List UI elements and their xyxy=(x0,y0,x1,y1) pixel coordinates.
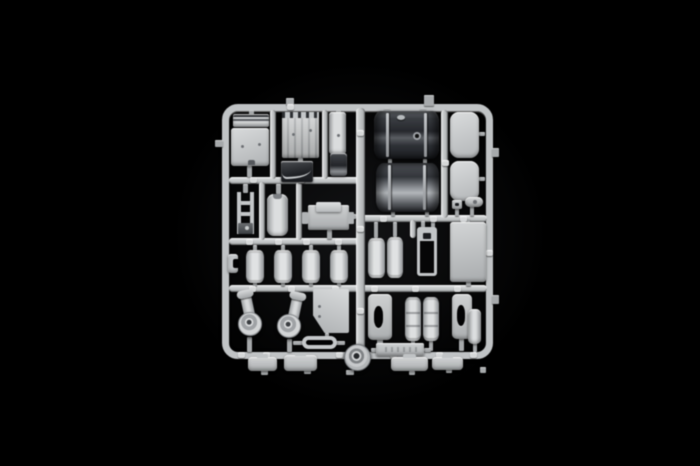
step-bracket-left xyxy=(368,294,392,340)
small-tall-tank xyxy=(267,194,288,236)
connector-stub xyxy=(479,132,485,136)
small-clip-part xyxy=(452,200,462,209)
bottom-tray-3 xyxy=(391,357,428,371)
molded-pin-dot xyxy=(258,143,261,146)
ribbed-rear-panel xyxy=(282,112,319,158)
cab-floor-panel xyxy=(231,128,269,166)
rounded-panel-lower xyxy=(450,161,479,201)
narrow-side-strip xyxy=(329,112,346,154)
gate-tab xyxy=(412,286,419,292)
sun-visor-bar xyxy=(233,114,269,127)
dark-sleeve-part xyxy=(330,153,347,176)
tank-strap xyxy=(386,113,389,157)
twin-cylinder-right xyxy=(387,237,403,278)
connector-stub xyxy=(459,338,464,351)
runner-link-b xyxy=(322,110,328,179)
small-bone-part xyxy=(465,197,483,207)
open-frame-part xyxy=(417,227,437,276)
air-cleaner-right xyxy=(276,295,306,340)
fuel-tank-dark-lower xyxy=(376,163,439,212)
dark-fender-wedge xyxy=(281,161,313,182)
ladder-rung xyxy=(241,201,250,205)
ribbed-cylinder-2 xyxy=(423,297,439,341)
oval-cutout xyxy=(374,306,383,328)
molded-pin-dot xyxy=(337,134,340,137)
connector-stub xyxy=(473,343,477,352)
ladder-foot-box xyxy=(238,223,253,234)
connector-stub xyxy=(492,295,499,304)
air-cleaner-disc xyxy=(277,314,301,338)
oval-ring-part xyxy=(302,336,337,349)
connector-stub xyxy=(424,348,431,352)
box-flange xyxy=(302,212,308,224)
connector-stub xyxy=(247,166,252,177)
air-reservoir-1 xyxy=(246,250,264,283)
sprue-label-plate xyxy=(376,343,424,356)
connector-stub xyxy=(374,222,378,238)
air-reservoir-3 xyxy=(302,250,320,283)
molded-pin-dot xyxy=(292,133,295,136)
battery-box xyxy=(308,205,349,230)
oval-cutout xyxy=(457,305,465,326)
connector-stub xyxy=(247,337,252,352)
bottom-tray-1 xyxy=(248,357,277,371)
round-hub-part xyxy=(344,344,371,371)
air-reservoir-2 xyxy=(274,250,292,283)
photo-canvas xyxy=(0,0,700,466)
bottom-tray-2 xyxy=(284,355,317,371)
gate-tab xyxy=(357,130,364,136)
connector-stub xyxy=(346,370,354,375)
gate-tab xyxy=(275,239,282,245)
connector-stub xyxy=(276,184,281,194)
connector-stub xyxy=(470,206,474,216)
gate-tab xyxy=(357,226,364,232)
large-flat-panel xyxy=(450,222,486,282)
connector-stub xyxy=(492,148,499,157)
connector-stub xyxy=(479,177,485,181)
ribbed-cylinder-1 xyxy=(405,297,421,341)
air-reservoir-4 xyxy=(330,250,348,283)
molded-pin-dot xyxy=(318,305,321,308)
connector-stub xyxy=(424,95,434,106)
gate-tab xyxy=(442,160,449,166)
ladder-rung xyxy=(241,212,250,216)
gate-tab xyxy=(336,352,343,358)
gate-tab xyxy=(470,352,477,358)
runner-link-e xyxy=(410,220,416,238)
gate-tab xyxy=(486,250,493,256)
tank-strap xyxy=(388,165,391,210)
gate-tab xyxy=(287,104,294,110)
fuel-tank-dark-upper xyxy=(374,111,439,159)
connector-stub xyxy=(287,339,292,352)
tank-strap xyxy=(424,113,427,157)
molded-pin-dot xyxy=(318,315,321,318)
gate-tab xyxy=(380,216,387,222)
runner-link-d xyxy=(296,182,302,240)
connector-stub xyxy=(393,222,397,237)
molded-pin-dot xyxy=(309,129,312,132)
small-cylinder xyxy=(468,309,481,344)
bottom-tray-4 xyxy=(432,357,463,370)
rounded-panel-upper xyxy=(450,112,479,158)
air-cleaner-left xyxy=(235,293,265,338)
connector-stub xyxy=(480,367,486,373)
gate-tab xyxy=(250,177,257,183)
gate-tab xyxy=(303,239,310,245)
connector-stub xyxy=(409,371,415,375)
connector-stub xyxy=(327,230,332,239)
air-cleaner-disc xyxy=(238,312,262,336)
molded-pin-dot xyxy=(241,145,244,148)
gate-tab xyxy=(238,352,245,358)
sprue xyxy=(0,0,700,466)
connector-stub xyxy=(215,140,223,147)
box-flange xyxy=(348,212,354,224)
gate-tab xyxy=(454,286,461,292)
ladder-frame-part xyxy=(237,192,254,234)
gate-tab xyxy=(371,286,378,292)
c-bracket xyxy=(228,254,238,273)
connector-stub xyxy=(336,341,345,345)
gate-tab xyxy=(357,308,364,314)
twin-cylinder-left xyxy=(368,238,385,278)
connector-stub xyxy=(455,208,459,216)
gate-tab xyxy=(430,216,437,222)
gate-tab xyxy=(246,239,253,245)
runner-link-c xyxy=(259,182,265,240)
gate-tab xyxy=(335,239,342,245)
runner-link-a xyxy=(270,110,276,179)
tank-strap xyxy=(423,165,426,210)
